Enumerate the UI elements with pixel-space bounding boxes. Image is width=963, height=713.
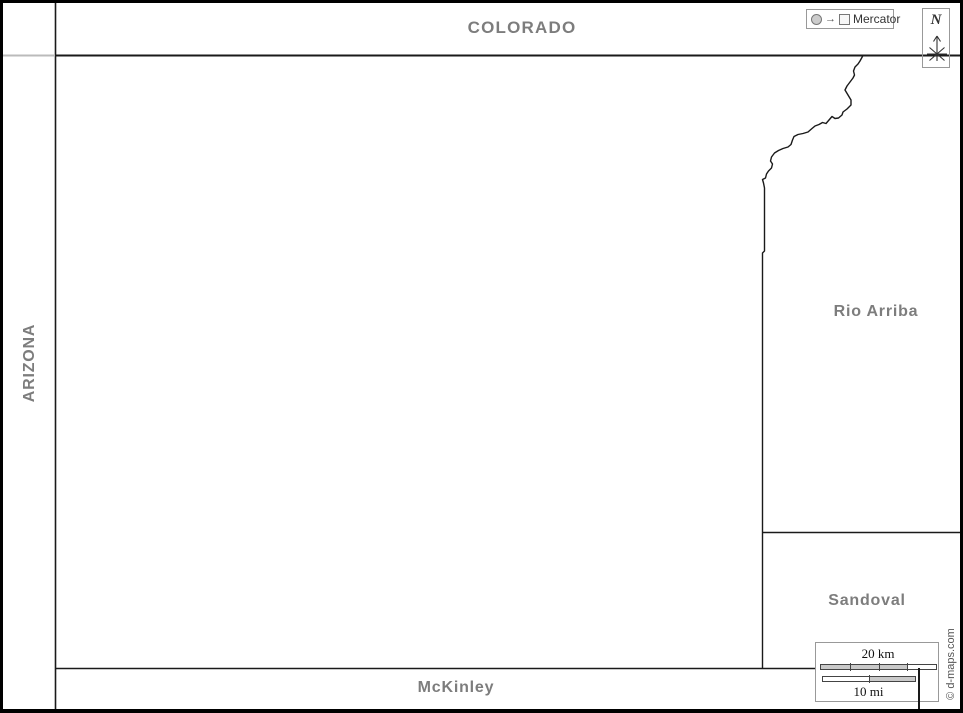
- scale-tick: [879, 663, 880, 671]
- circle-icon: [811, 14, 822, 25]
- scale-bar-mi: [822, 676, 916, 682]
- square-icon: [839, 14, 850, 25]
- scale-segment: [879, 665, 908, 669]
- label-mckinley: McKinley: [418, 679, 495, 697]
- scale-segment: [821, 665, 850, 669]
- north-arrow-box: N: [922, 8, 950, 68]
- san-juan-east-boundary: [763, 56, 864, 669]
- copyright-credit: © d-maps.com: [945, 628, 957, 700]
- scale-bar-box: 20 km 10 mi: [815, 642, 939, 702]
- scale-mi-label: 10 mi: [822, 684, 915, 700]
- scale-tick: [907, 663, 908, 671]
- compass-star-icon: [923, 9, 951, 69]
- map-frame-bottom: [0, 709, 963, 713]
- county-outline-map: COLORADO ARIZONA Rio Arriba Sandoval McK…: [0, 0, 963, 713]
- scale-segment: [823, 677, 869, 681]
- label-arizona: ARIZONA: [21, 324, 39, 402]
- label-rio-arriba: Rio Arriba: [834, 303, 919, 321]
- map-frame-left: [0, 0, 3, 713]
- boundary-lines-layer: [0, 0, 963, 713]
- scale-segment: [869, 677, 915, 681]
- map-frame-top: [0, 0, 963, 3]
- projection-legend-box: → Mercator: [806, 9, 894, 29]
- label-colorado: COLORADO: [468, 18, 577, 38]
- projection-name: Mercator: [853, 13, 900, 25]
- sandoval-mckinley-county-line: [918, 668, 920, 713]
- scale-segment: [907, 665, 936, 669]
- scale-tick: [869, 675, 870, 683]
- arrow-right-icon: →: [825, 14, 836, 25]
- label-sandoval: Sandoval: [828, 592, 906, 610]
- scale-segment: [850, 665, 879, 669]
- scale-km-label: 20 km: [820, 646, 936, 662]
- scale-tick: [850, 663, 851, 671]
